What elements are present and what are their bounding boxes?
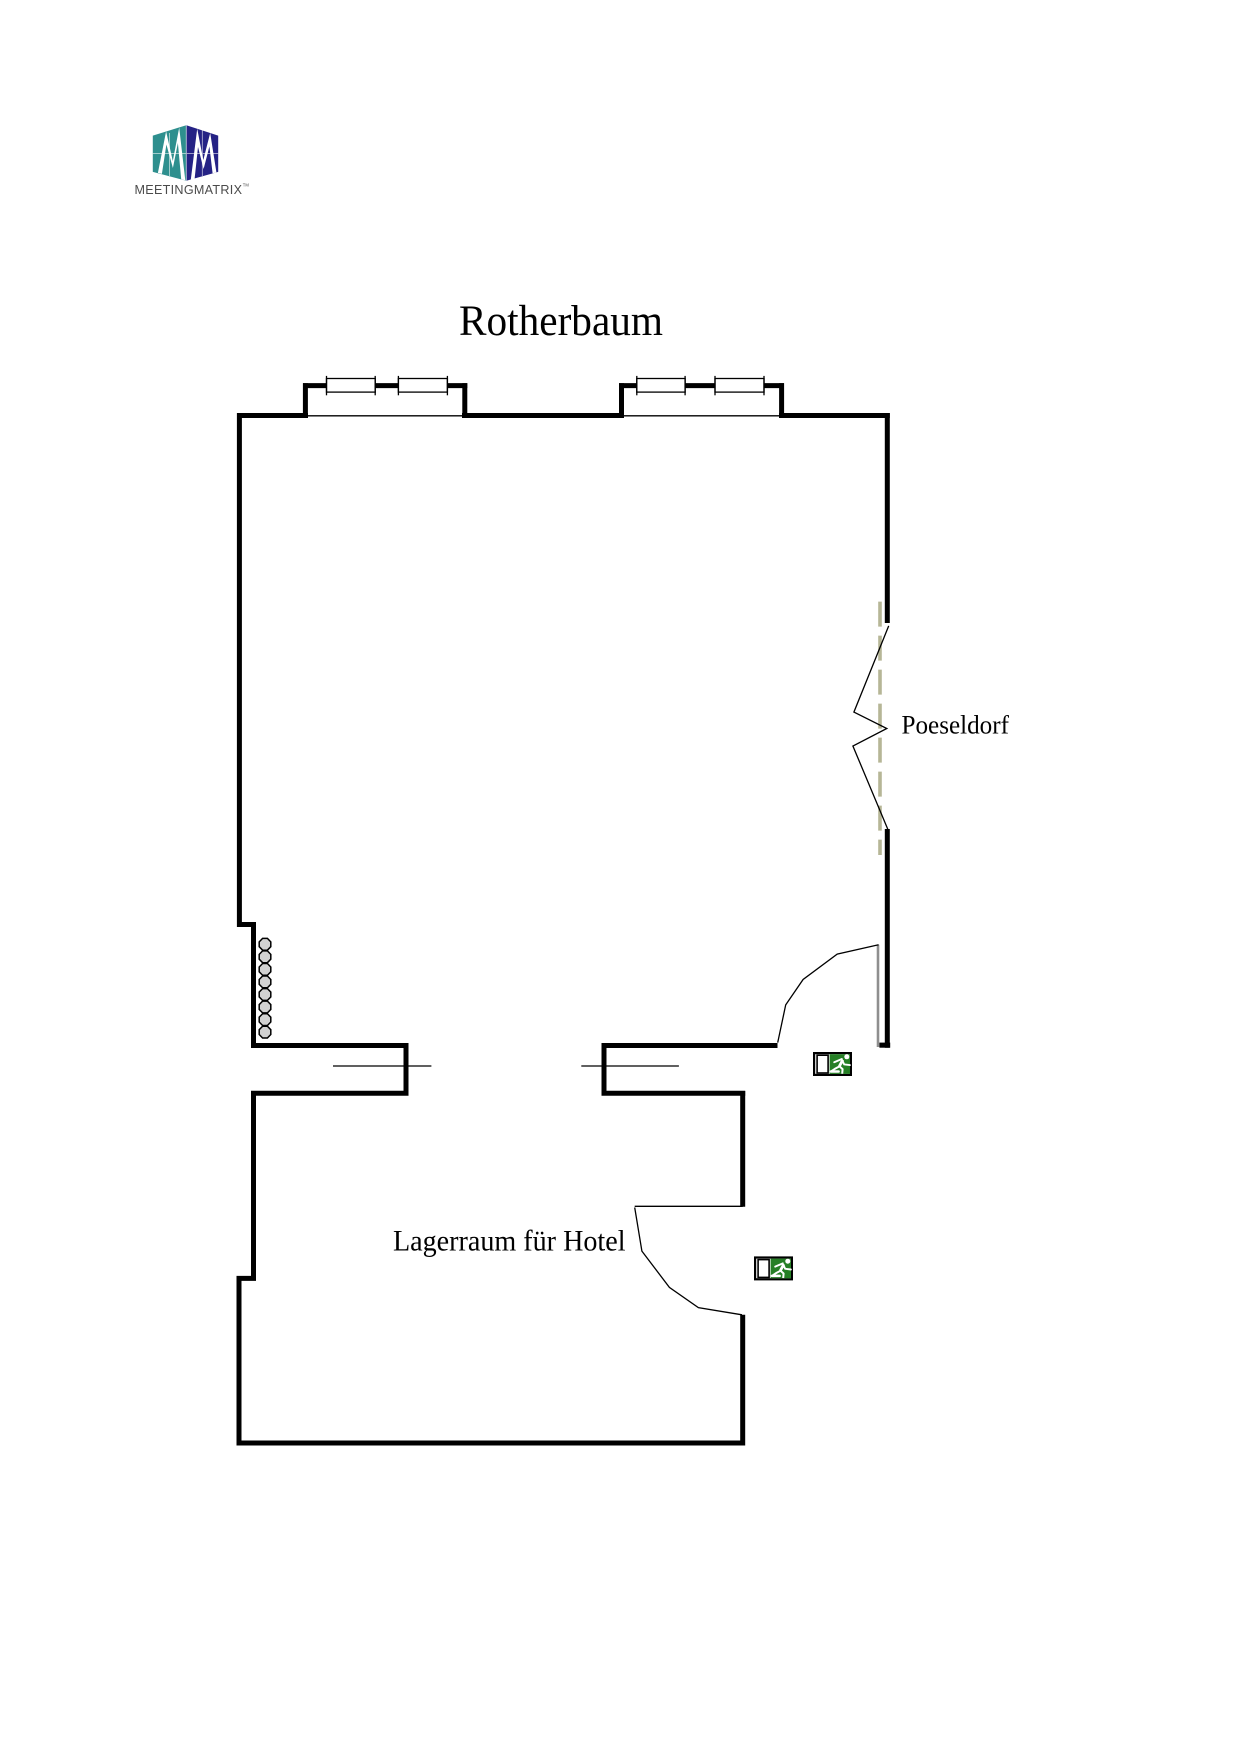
svg-text:Rotherbaum: Rotherbaum [459,298,663,345]
svg-text:Poeseldorf: Poeseldorf [902,710,1010,740]
svg-text:Lagerraum für Hotel: Lagerraum für Hotel [393,1225,626,1258]
svg-text:TM: TM [243,183,250,188]
svg-text:MEETINGMATRIX: MEETINGMATRIX [135,183,243,197]
